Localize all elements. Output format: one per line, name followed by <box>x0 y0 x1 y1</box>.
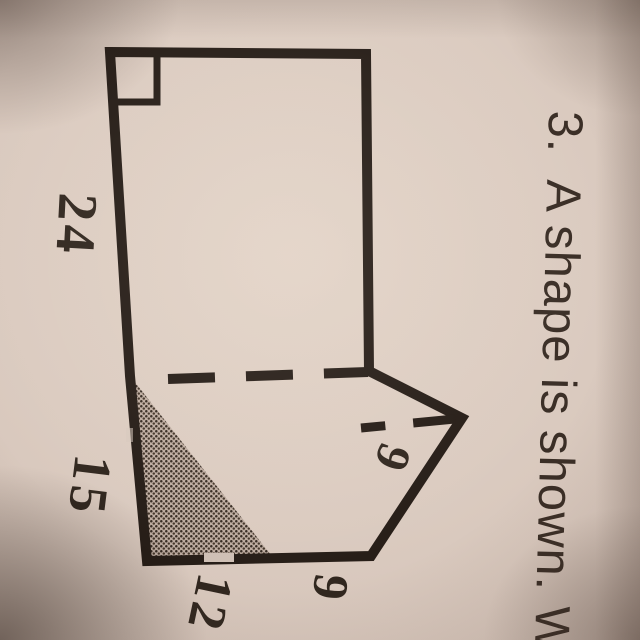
right-angle-marker <box>112 57 157 102</box>
dashed-height-segment <box>361 419 455 428</box>
problem-number: 3. <box>537 110 592 154</box>
left-edge-print-gap <box>126 428 133 442</box>
side-label-24: 24 <box>46 192 105 259</box>
side-label-15: 15 <box>59 452 120 520</box>
bottom-edge-notch <box>204 553 234 562</box>
dashed-divider-line <box>168 372 368 379</box>
problem-sentence: A shape is shown. W <box>524 179 590 640</box>
side-label-12: 12 <box>178 569 241 637</box>
worksheet-photo: 24 15 12 9 9 3.A shape is shown. W <box>0 0 640 640</box>
shaded-triangle <box>134 381 271 556</box>
